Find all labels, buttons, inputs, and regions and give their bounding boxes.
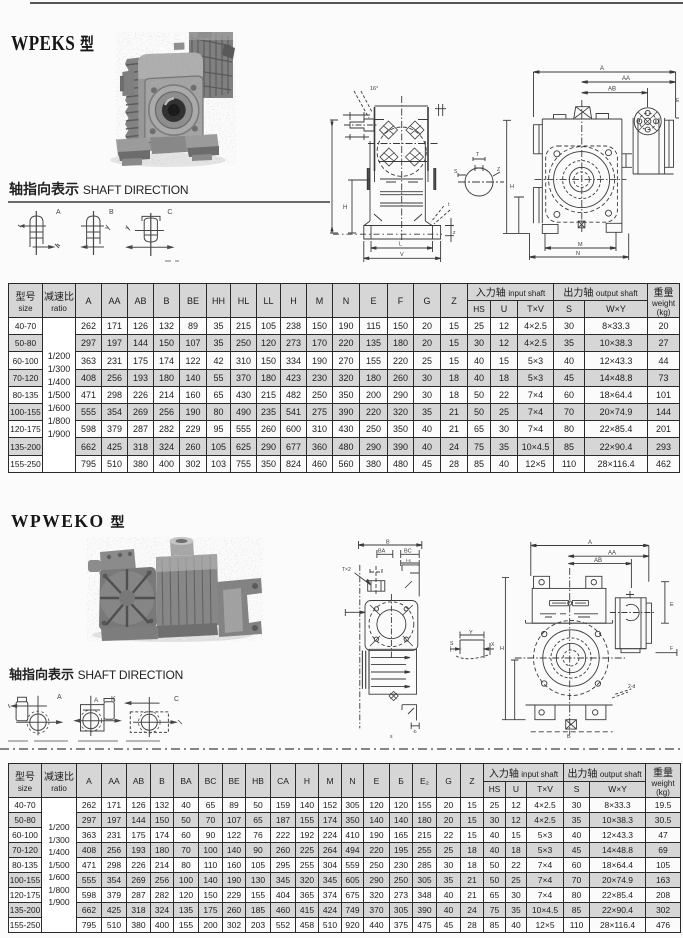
- svg-text:V: V: [400, 252, 404, 258]
- svg-text:BC: BC: [404, 549, 412, 555]
- svg-text:E: E: [676, 98, 680, 104]
- svg-text:S: S: [450, 641, 454, 647]
- svg-text:N: N: [576, 251, 580, 257]
- svg-text:AB: AB: [594, 558, 602, 564]
- svg-text:B: B: [109, 209, 114, 216]
- svg-text:-b: -b: [413, 729, 417, 734]
- svg-text:H: H: [510, 184, 514, 190]
- svg-text:A: A: [588, 540, 592, 546]
- svg-text:F: F: [670, 646, 673, 652]
- svg-text:z: z: [453, 230, 456, 236]
- svg-text:M: M: [578, 242, 583, 248]
- svg-text:T: T: [476, 152, 479, 158]
- svg-text:L: L: [399, 242, 402, 248]
- svg-text:AA: AA: [622, 76, 630, 82]
- svg-text:Y: Y: [469, 630, 473, 636]
- svg-text:S: S: [454, 169, 458, 175]
- svg-text:H: H: [343, 205, 347, 211]
- svg-text:H: H: [500, 646, 504, 652]
- svg-text:BA: BA: [378, 549, 386, 555]
- svg-text:X: X: [491, 642, 495, 648]
- svg-text:AA: AA: [608, 551, 616, 557]
- svg-text:C: C: [167, 209, 172, 216]
- svg-text:A: A: [94, 697, 99, 704]
- svg-text:AB: AB: [608, 87, 616, 93]
- svg-text:E: E: [670, 602, 674, 608]
- svg-text:t: t: [448, 202, 450, 208]
- svg-text:K: K: [111, 696, 116, 703]
- svg-text:A: A: [600, 66, 604, 72]
- svg-text:B: B: [567, 734, 571, 740]
- svg-text:A: A: [57, 694, 62, 701]
- svg-text:B: B: [386, 540, 390, 546]
- svg-text:16°: 16°: [370, 86, 378, 92]
- svg-text:s: s: [390, 734, 393, 740]
- svg-text:2-d: 2-d: [628, 684, 635, 690]
- svg-text:T×2: T×2: [342, 567, 351, 573]
- svg-text:C: C: [174, 696, 179, 703]
- svg-text:A: A: [56, 209, 61, 216]
- svg-text:l-s: l-s: [406, 558, 411, 563]
